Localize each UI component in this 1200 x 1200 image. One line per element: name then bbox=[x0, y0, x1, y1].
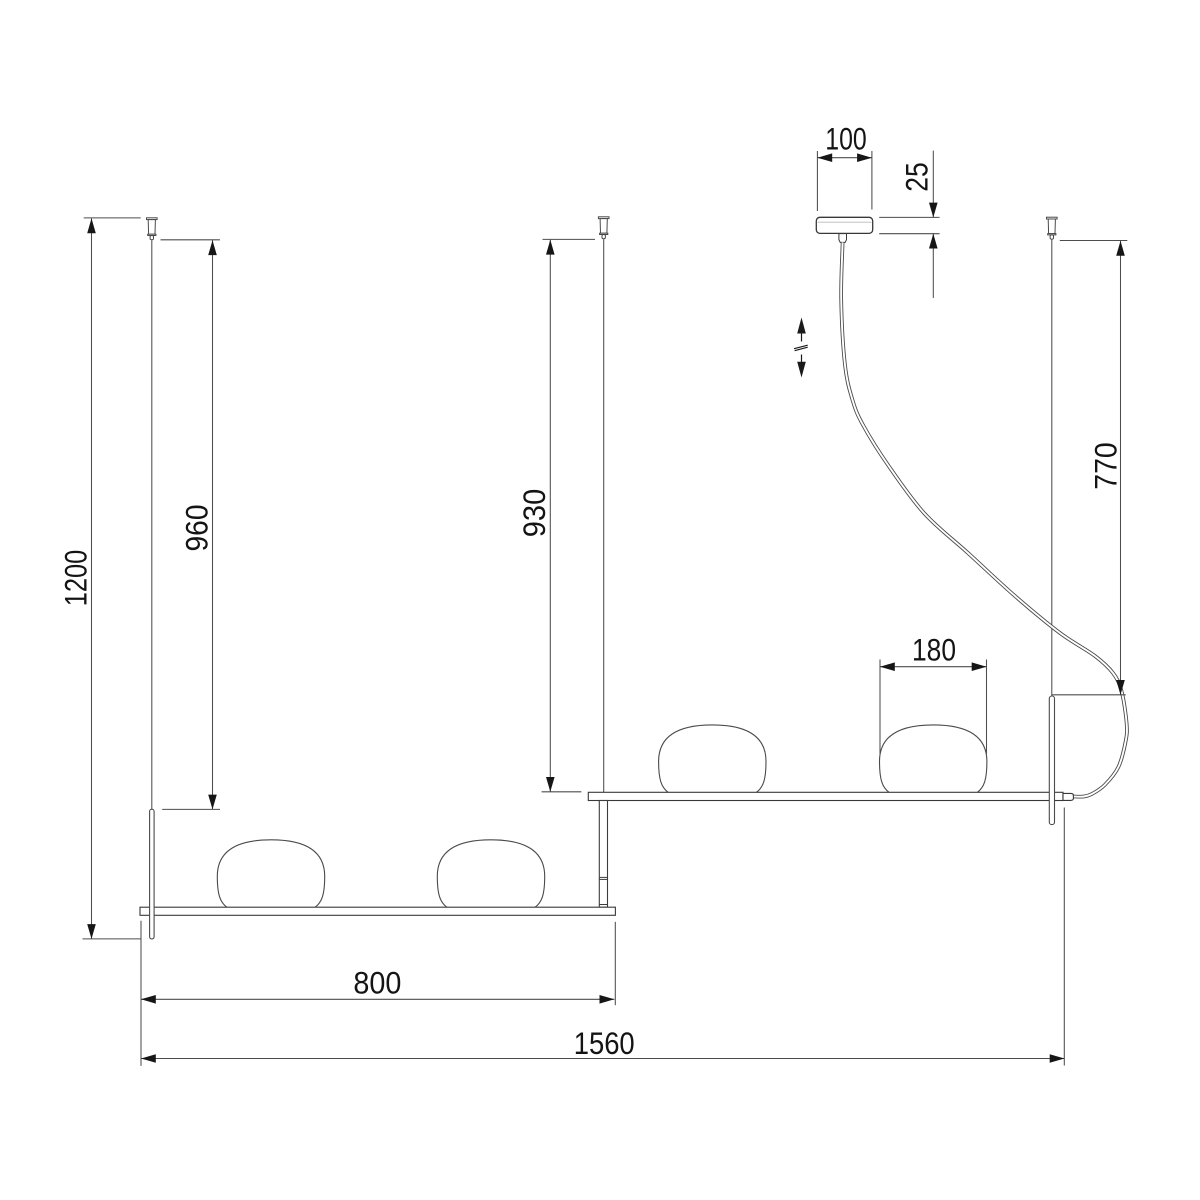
svg-text:25: 25 bbox=[899, 162, 935, 192]
svg-text:960: 960 bbox=[179, 505, 215, 552]
svg-text:180: 180 bbox=[912, 631, 956, 667]
svg-text:1200: 1200 bbox=[58, 550, 94, 607]
svg-text:770: 770 bbox=[1088, 442, 1124, 490]
svg-text:100: 100 bbox=[825, 121, 867, 157]
svg-text:930: 930 bbox=[516, 489, 552, 538]
svg-text:1560: 1560 bbox=[574, 1025, 635, 1061]
svg-text:800: 800 bbox=[353, 965, 401, 1001]
